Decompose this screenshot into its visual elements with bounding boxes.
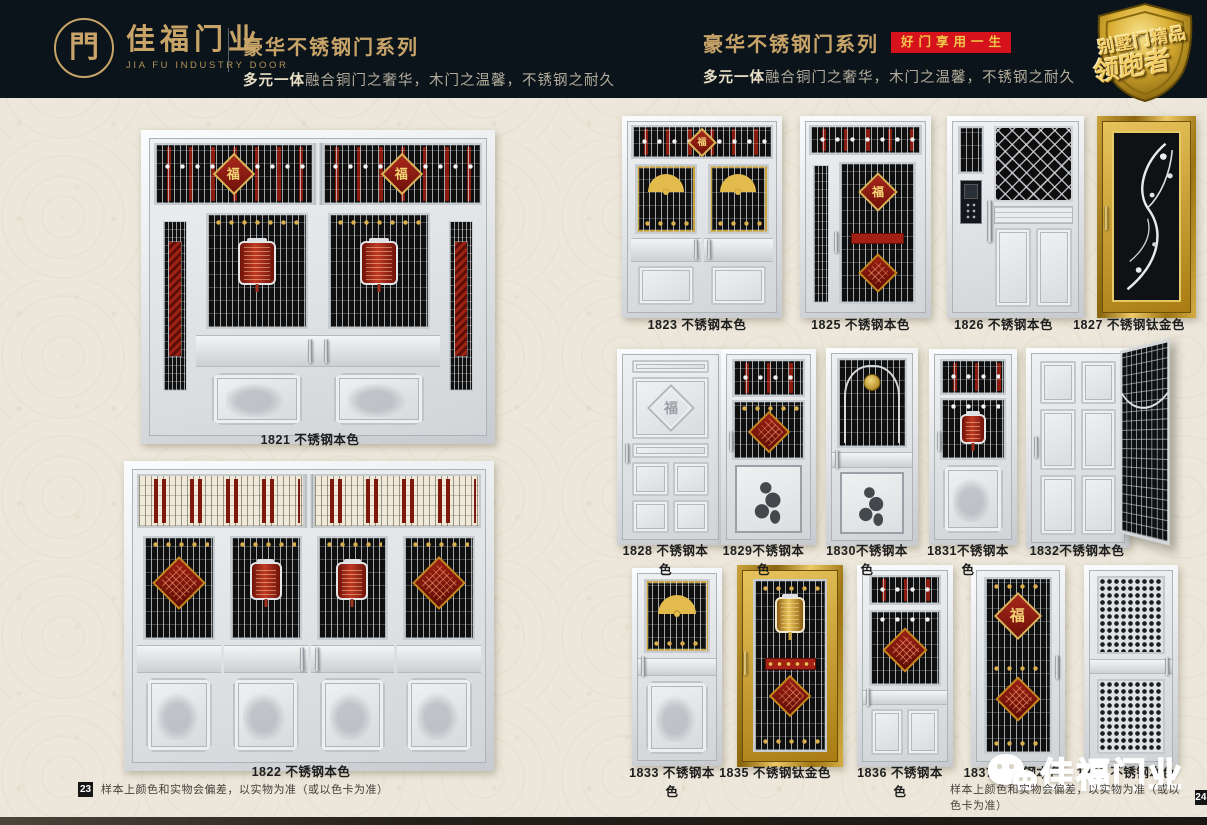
- door-1830: [826, 348, 918, 546]
- knot-medallion: [882, 627, 927, 672]
- emboss-panel: [943, 465, 1003, 533]
- window-grille: [644, 579, 710, 653]
- top-grille: [732, 359, 805, 397]
- mid-rail: [196, 335, 318, 367]
- series-block-left: 豪华不锈钢门系列 多元一体融合铜门之奢华，木门之温馨，不锈钢之耐久: [243, 31, 615, 90]
- mid-grille: [732, 400, 805, 460]
- door-body-1821: [154, 211, 482, 431]
- product-label: 1827 不锈钢钛金色: [1072, 314, 1186, 333]
- leaf-window-grille: [230, 536, 302, 640]
- emboss-panel: [146, 678, 212, 752]
- emboss-panel: [1081, 409, 1117, 469]
- ornament-dots: [875, 616, 935, 623]
- side-stile: [809, 159, 833, 309]
- etched-art-panel: [840, 472, 904, 534]
- door-leaf: [224, 534, 308, 758]
- transom-grille: [809, 125, 922, 155]
- leaf-window-grille: [317, 536, 389, 640]
- gold-fan-ornament: [648, 174, 684, 192]
- emboss-panel: [334, 373, 424, 425]
- six-panel-layout: [1040, 361, 1116, 535]
- leaf-window-grille: [635, 164, 697, 234]
- logo-glyph: 門: [69, 33, 99, 63]
- leaf-window-grille: [708, 164, 770, 234]
- emboss-panel: [632, 500, 669, 534]
- subtitle-emphasis: 多元一体: [703, 70, 765, 86]
- product-label: 1821 不锈钢本色: [141, 429, 479, 448]
- tassel-ornament: [455, 242, 467, 356]
- door-1831: [929, 349, 1017, 545]
- ornament-dots: [738, 374, 799, 381]
- door-leaf: [989, 122, 1078, 312]
- lantern-ornament: [336, 562, 368, 600]
- door-1822: [124, 461, 494, 771]
- subtitle-rest: 融合铜门之奢华，木门之温馨，不锈钢之耐久: [765, 70, 1075, 86]
- top-grille: [940, 359, 1006, 395]
- mid-rail: [1090, 659, 1172, 674]
- door-1823: 福: [622, 116, 782, 318]
- page-number: 24: [1195, 790, 1207, 805]
- window-grille: 福: [984, 577, 1052, 754]
- emboss-panel: [233, 678, 299, 752]
- mid-rail: [631, 238, 701, 262]
- stile-grille: [813, 165, 829, 303]
- emboss-panel: [212, 373, 302, 425]
- series-title: 豪华不锈钢门系列: [703, 28, 879, 57]
- door-leaf: [196, 211, 318, 431]
- door-1833: [632, 568, 722, 766]
- door-1827: [1097, 116, 1196, 318]
- emboss-panel: [638, 266, 694, 305]
- red-bar-pairs: [318, 479, 476, 523]
- page-bottom-edge: [0, 817, 1207, 825]
- gold-dots: [990, 583, 1046, 590]
- gold-dots: [409, 541, 469, 548]
- door-handle: [1104, 206, 1108, 230]
- emboss-panel: [1036, 228, 1072, 307]
- tassel-ornament: [169, 242, 181, 356]
- door-1821: 福 福: [141, 130, 495, 444]
- door-leaf: 福: [833, 159, 922, 309]
- door-handle: [315, 647, 319, 671]
- ornament-dots: [946, 403, 1000, 410]
- door-handle: [1165, 657, 1169, 675]
- page-footer-left: 23 样本上颜色和实物会偏差，以实物为准（或以色卡为准）: [78, 781, 389, 797]
- emboss-panel: [907, 709, 939, 755]
- emboss-strip: [632, 443, 709, 458]
- fu-medallion: 福: [858, 172, 898, 212]
- door-handle: [1055, 655, 1059, 679]
- mid-rail: [397, 645, 481, 673]
- leaf-window-grille: [143, 536, 215, 640]
- door-leaf: [397, 534, 481, 758]
- knot-medallion: [769, 675, 811, 717]
- gold-fan-ornament: [658, 595, 696, 614]
- product-label: 1833 不锈钢本色: [628, 762, 716, 800]
- leaf-window-grille: 福: [839, 162, 916, 304]
- product-label: 1830不锈钢本色: [822, 540, 912, 578]
- gold-dots: [759, 585, 821, 592]
- gold-dots: [236, 541, 296, 548]
- knot-medallion: [412, 556, 466, 610]
- emboss-panel: [995, 228, 1031, 307]
- door-handle: [866, 688, 870, 706]
- emboss-panel: [711, 266, 767, 305]
- fu-medallion: 福: [994, 592, 1042, 640]
- door-handle: [625, 443, 629, 463]
- transom-grille-light: [137, 474, 305, 528]
- transom-1821: 福 福: [154, 143, 482, 205]
- leaf-window-grille: [328, 213, 430, 329]
- slogan-badge: 好门享用一生: [891, 32, 1011, 53]
- door-1828: 福: [617, 349, 724, 545]
- lower-panels: [995, 228, 1072, 307]
- side-stile: [440, 211, 482, 431]
- page-footer-right: 样本上颜色和实物会偏差，以实物为准（或以色卡为准） 24: [950, 781, 1207, 813]
- door-handle: [300, 647, 304, 671]
- transom-1822: [137, 474, 481, 528]
- door-leaf: [631, 163, 701, 309]
- emboss-panel: [406, 678, 472, 752]
- lantern-ornament: [238, 241, 276, 285]
- intercom-unit: [960, 180, 982, 224]
- ornate-window: [1112, 131, 1181, 302]
- main-leaf: [1026, 348, 1130, 548]
- subtitle-emphasis: 多元一体: [243, 73, 305, 89]
- gold-dots: [334, 219, 424, 226]
- door-leaf: [137, 534, 221, 758]
- door-1837: 福: [971, 565, 1065, 767]
- door-1835: [737, 565, 843, 767]
- mid-rail: [224, 645, 308, 673]
- mid-rail: [137, 645, 221, 673]
- door-1825: 福: [800, 116, 931, 318]
- door-body: 福: [809, 159, 922, 309]
- door-handle: [324, 339, 328, 363]
- swirl-ornament-icon: [1114, 133, 1179, 300]
- door-handle: [694, 239, 698, 259]
- ornament-dots: [815, 136, 916, 143]
- gold-dots: [212, 219, 302, 226]
- door-1829: [721, 349, 816, 545]
- stile-grille: [163, 221, 187, 391]
- leaf-window-grille: [403, 536, 475, 640]
- product-label: 1826 不锈钢本色: [940, 314, 1067, 333]
- emboss-panel: [673, 500, 710, 534]
- mid-rail: [311, 645, 395, 673]
- product-label: 1832不锈钢本色: [1028, 540, 1126, 559]
- door-body-1822: [137, 534, 481, 758]
- series-subtitle: 多元一体融合铜门之奢华，木门之温馨，不锈钢之耐久: [703, 66, 1075, 87]
- mid-rail: [318, 335, 440, 367]
- product-label: 1831不锈钢本色: [925, 540, 1011, 578]
- catalog-spread: 門 佳福门业 JIA FU INDUSTRY DOOR 豪华不锈钢门系列 多元一…: [0, 0, 1207, 825]
- arched-grille: [837, 358, 907, 448]
- etched-art-panel: [735, 465, 802, 533]
- color-disclaimer: 样本上颜色和实物会偏差，以实物为准（或以色卡为准）: [950, 781, 1187, 813]
- gold-fan-ornament: [720, 174, 756, 192]
- ornament-dots: [946, 373, 1000, 380]
- side-stile: [154, 211, 196, 431]
- gold-dots: [759, 738, 821, 745]
- open-grille-leaf: [1120, 338, 1170, 545]
- door-1836: [857, 565, 953, 767]
- lantern-ornament: [360, 241, 398, 285]
- emboss-panel: [1040, 475, 1076, 535]
- gold-dots: [990, 665, 1046, 672]
- emboss-strip: [632, 360, 709, 373]
- red-rail: [852, 234, 903, 243]
- product-label: 1829不锈钢本色: [721, 540, 806, 578]
- gold-lantern-ornament: [775, 597, 805, 633]
- emboss-panel: [1081, 475, 1117, 535]
- transom-grille: 福: [322, 143, 482, 205]
- emboss-panel: [1040, 409, 1076, 469]
- gold-dots: [641, 220, 691, 227]
- transom-post: [305, 474, 313, 528]
- door-logo-icon: 門: [54, 18, 114, 78]
- lantern-ornament: [960, 414, 986, 444]
- perforated-panel: [1097, 576, 1165, 654]
- gold-medallion: [864, 374, 881, 391]
- transom-grille: 福: [154, 143, 314, 205]
- emboss-panel: [1081, 361, 1117, 404]
- emboss-diamond-panel: 福: [632, 377, 709, 439]
- door-1838: [1084, 565, 1178, 767]
- product-label: 1835 不锈钢钛金色: [717, 762, 833, 781]
- door-handle: [1034, 436, 1038, 458]
- transom-post: [314, 143, 322, 205]
- mid-rail: [863, 690, 947, 705]
- lower-panels: [871, 709, 939, 755]
- door-leaf: [704, 163, 774, 309]
- series-title: 豪华不锈钢门系列: [243, 31, 615, 60]
- product-label: 1823 不锈钢本色: [622, 314, 772, 333]
- knot-medallion: [995, 676, 1040, 721]
- quad-panels: [632, 462, 709, 533]
- series-subtitle: 多元一体融合铜门之奢华，木门之温馨，不锈钢之耐久: [243, 69, 615, 90]
- gold-dots: [714, 220, 764, 227]
- emboss-panel: [871, 709, 903, 755]
- knot-medallion: [152, 556, 206, 610]
- emboss-panel: [646, 681, 708, 754]
- red-rail: [766, 659, 815, 669]
- emboss-diamond: 福: [646, 384, 694, 432]
- ornament-dots: [875, 586, 935, 593]
- door-leaf: [311, 534, 395, 758]
- product-label: 1825 不锈钢本色: [800, 314, 921, 333]
- gold-dots: [323, 541, 383, 548]
- transom-grille: [869, 575, 941, 605]
- emboss-panel: [320, 678, 386, 752]
- red-bar-pairs: [142, 479, 300, 523]
- stile-grille: [958, 126, 984, 174]
- stile-grille: [449, 221, 473, 391]
- leaf-window-grille: [206, 213, 308, 329]
- emboss-panel: [1040, 361, 1076, 404]
- door-handle: [937, 431, 941, 451]
- product-label: 1836 不锈钢本色: [857, 762, 943, 800]
- door-1832: [1026, 348, 1179, 538]
- product-label: 1828 不锈钢本色: [617, 540, 714, 578]
- knot-medallion: [858, 253, 898, 293]
- transom-grille: 福: [631, 125, 773, 159]
- gold-dots: [650, 640, 704, 647]
- subtitle-rest: 融合铜门之奢华，木门之温馨，不锈钢之耐久: [305, 73, 615, 89]
- door-handle: [835, 450, 839, 468]
- louver-rail: [994, 206, 1073, 224]
- emboss-panel: [632, 462, 669, 496]
- emboss-panel: [673, 462, 710, 496]
- door-handle: [308, 339, 312, 363]
- page-number: 23: [78, 782, 93, 797]
- lattice-grille: [994, 126, 1073, 202]
- mid-rail: [638, 658, 716, 676]
- door-leaf: [318, 211, 440, 431]
- side-stile: [953, 122, 989, 312]
- door-body: [631, 163, 773, 309]
- door-handle: [729, 431, 733, 451]
- color-disclaimer: 样本上颜色和实物会偏差，以实物为准（或以色卡为准）: [101, 781, 389, 797]
- gold-shield-badge: 别墅门精品 领跑者: [1079, 2, 1205, 102]
- header-divider: [228, 28, 229, 72]
- lantern-ornament: [250, 562, 282, 600]
- window-grille: [753, 579, 827, 752]
- door-handle: [641, 656, 645, 676]
- door-handle: [707, 239, 711, 259]
- mid-rail: [832, 452, 912, 468]
- door-1826: [947, 116, 1084, 318]
- header-bar: 門 佳福门业 JIA FU INDUSTRY DOOR 豪华不锈钢门系列 多元一…: [0, 0, 1207, 98]
- transom-grille-light: [313, 474, 481, 528]
- mid-rail: [704, 238, 774, 262]
- product-label: 1822 不锈钢本色: [124, 761, 478, 780]
- window-grille: [869, 610, 941, 686]
- door-handle: [834, 231, 838, 253]
- door-handle: [987, 200, 992, 242]
- mid-grille: [940, 398, 1006, 460]
- knot-medallion: [747, 411, 789, 453]
- gold-dots: [149, 541, 209, 548]
- series-block-right: 豪华不锈钢门系列 好门享用一生 多元一体融合铜门之奢华，木门之温馨，不锈钢之耐久: [703, 28, 1075, 87]
- door-handle: [743, 651, 747, 675]
